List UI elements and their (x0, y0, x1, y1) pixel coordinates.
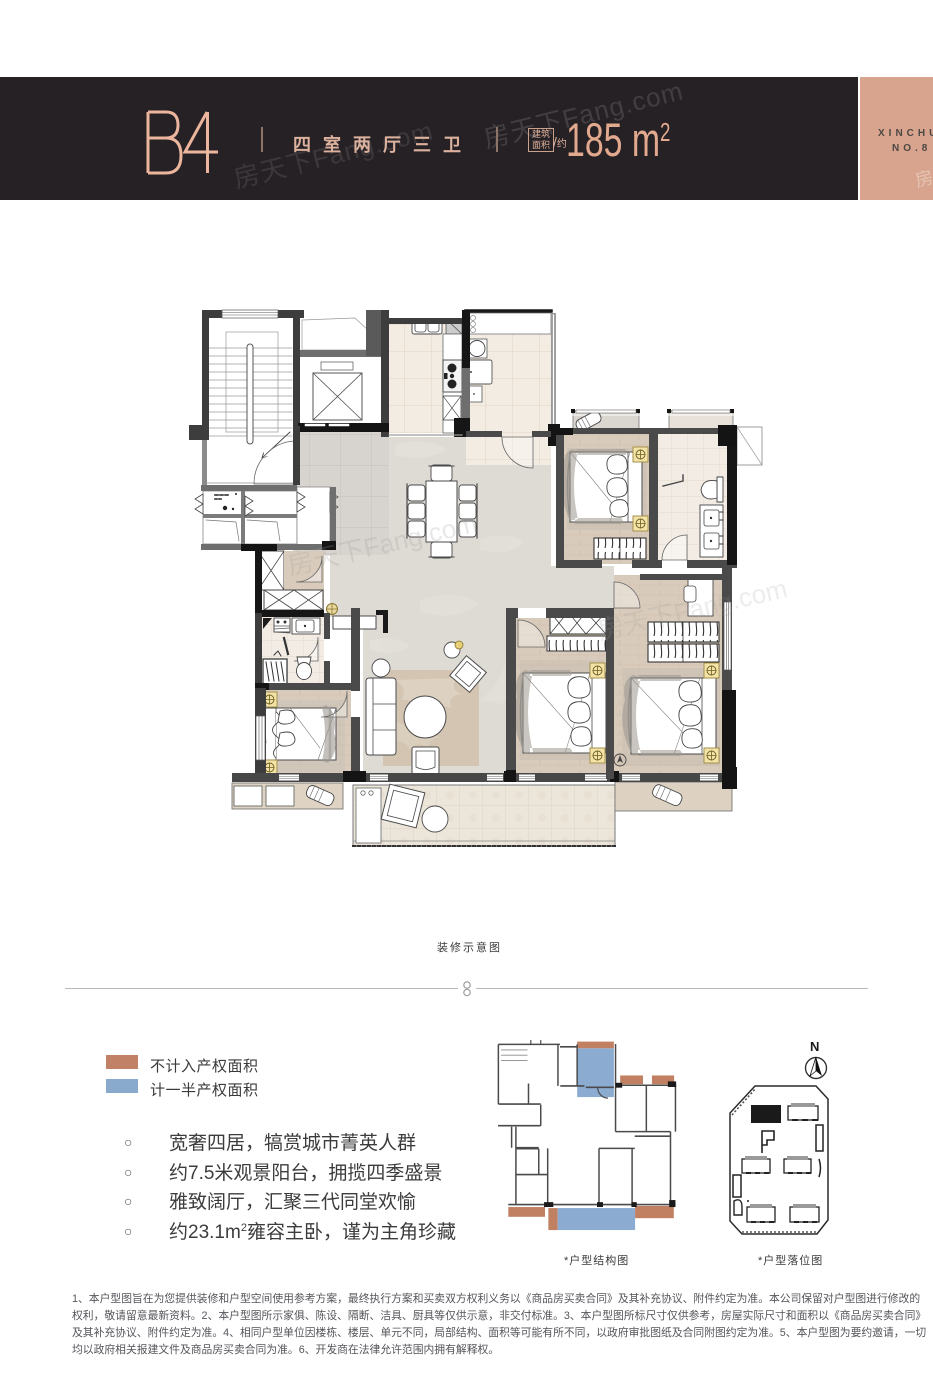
svg-text:N: N (810, 1039, 819, 1054)
